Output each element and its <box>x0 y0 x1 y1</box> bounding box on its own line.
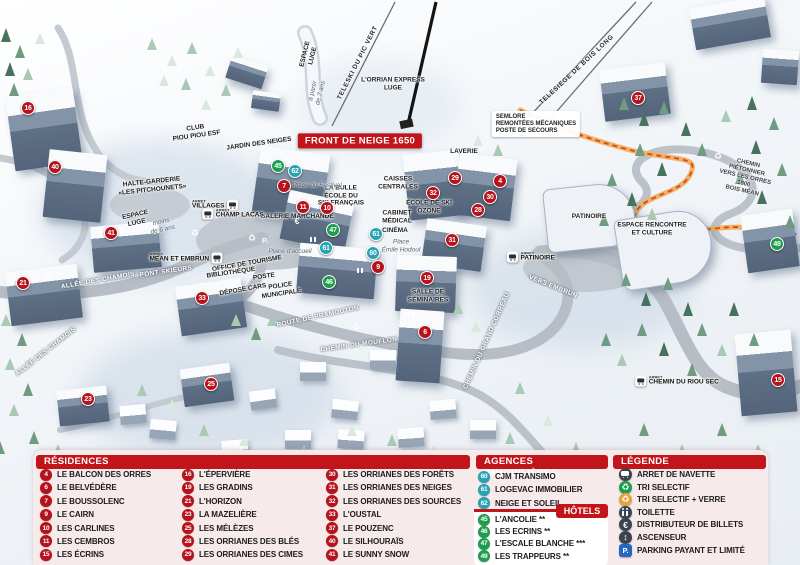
tree-icon <box>777 163 787 176</box>
tree-icon <box>571 442 581 454</box>
tree-icon <box>23 383 33 396</box>
building <box>735 330 798 417</box>
tree-icon <box>0 441 5 454</box>
tree-icon <box>387 434 397 446</box>
chalet <box>470 420 496 439</box>
tree-icon <box>721 110 731 122</box>
tree-icon <box>251 327 261 340</box>
tree-icon <box>785 215 795 228</box>
tree-icon <box>23 68 33 80</box>
tree-icon <box>641 292 651 306</box>
chalet <box>149 419 177 440</box>
tree-icon <box>493 144 503 156</box>
building <box>180 363 235 408</box>
building <box>395 255 457 313</box>
chalet <box>300 362 326 381</box>
tree-icon <box>687 363 697 376</box>
tree-icon <box>621 273 631 286</box>
tree-icon <box>735 171 745 184</box>
tree-icon <box>543 415 553 426</box>
tree-icon <box>677 444 687 456</box>
building <box>90 221 162 273</box>
tree-icon <box>17 333 27 346</box>
tree-icon <box>181 78 191 90</box>
chalet <box>370 350 396 369</box>
tree-icon <box>205 65 215 76</box>
tree-icon <box>515 382 525 394</box>
tree-icon <box>29 431 39 444</box>
tree-icon <box>683 302 693 316</box>
tree-icon <box>657 162 667 176</box>
tree-icon <box>221 84 231 96</box>
tree-icon <box>5 62 15 76</box>
tree-icon <box>147 38 157 50</box>
tree-icon <box>505 432 515 444</box>
tree-icon <box>231 314 241 326</box>
tree-icon <box>347 425 357 436</box>
tree-icon <box>747 96 757 110</box>
chalet <box>429 399 457 420</box>
tree-icon <box>717 344 727 356</box>
tree-icon <box>627 192 637 206</box>
tree-icon <box>599 213 609 226</box>
tree-icon <box>9 404 19 416</box>
building <box>761 49 799 85</box>
tree-icon <box>635 143 645 156</box>
tree-icon <box>35 33 45 44</box>
building <box>689 0 771 50</box>
tree-icon <box>697 143 707 156</box>
tree-icon <box>137 384 147 396</box>
tree-icon <box>647 208 657 220</box>
tree-icon <box>5 358 15 370</box>
building <box>296 243 378 300</box>
tree-icon <box>159 75 169 86</box>
tree-icon <box>751 140 761 154</box>
tree-icon <box>1 314 11 326</box>
tree-icon <box>697 323 707 336</box>
tree-icon <box>201 99 211 110</box>
tree-icon <box>607 173 617 186</box>
tree-icon <box>473 135 483 146</box>
tree-icon <box>637 323 647 336</box>
tree-icon <box>299 444 309 456</box>
buildings-and-trees <box>0 0 800 565</box>
tree-icon <box>15 45 25 58</box>
tree-icon <box>639 423 649 436</box>
tree-icon <box>471 321 481 332</box>
tree-icon <box>757 190 767 204</box>
tree-icon <box>601 333 611 346</box>
tree-icon <box>267 314 277 326</box>
building <box>175 278 247 337</box>
tree-icon <box>53 444 63 456</box>
building <box>43 149 108 223</box>
building <box>5 264 83 326</box>
building <box>56 385 109 426</box>
chalet <box>119 404 147 425</box>
tree-icon <box>753 444 763 456</box>
tree-icon <box>769 117 779 130</box>
building <box>225 55 269 90</box>
tree-icon <box>9 83 19 96</box>
tree-icon <box>233 47 243 58</box>
tree-icon <box>167 55 177 66</box>
tree-icon <box>187 42 197 54</box>
tree-icon <box>749 333 759 346</box>
tree-icon <box>659 342 669 356</box>
tree-icon <box>199 424 209 436</box>
tree-icon <box>681 122 691 136</box>
tree-icon <box>429 445 439 456</box>
tree-icon <box>659 101 669 114</box>
tree-icon <box>453 302 463 314</box>
tree-icon <box>639 112 649 126</box>
building <box>251 90 281 112</box>
building <box>452 153 517 222</box>
tree-icon <box>167 399 177 410</box>
resort-map-plan: FRONT DE NEIGE 1650L'ORRIAN EXPRESS LUGE… <box>0 0 800 565</box>
chalet <box>249 388 277 410</box>
tree-icon <box>617 354 627 366</box>
tree-icon <box>717 423 727 436</box>
tree-icon <box>729 302 739 316</box>
tree-icon <box>239 435 249 446</box>
tree-icon <box>663 277 673 290</box>
chalet <box>331 399 359 421</box>
chalet <box>397 427 424 448</box>
tree-icon <box>1 28 11 42</box>
building <box>396 309 445 384</box>
building <box>280 190 355 253</box>
tree-icon <box>619 97 629 110</box>
